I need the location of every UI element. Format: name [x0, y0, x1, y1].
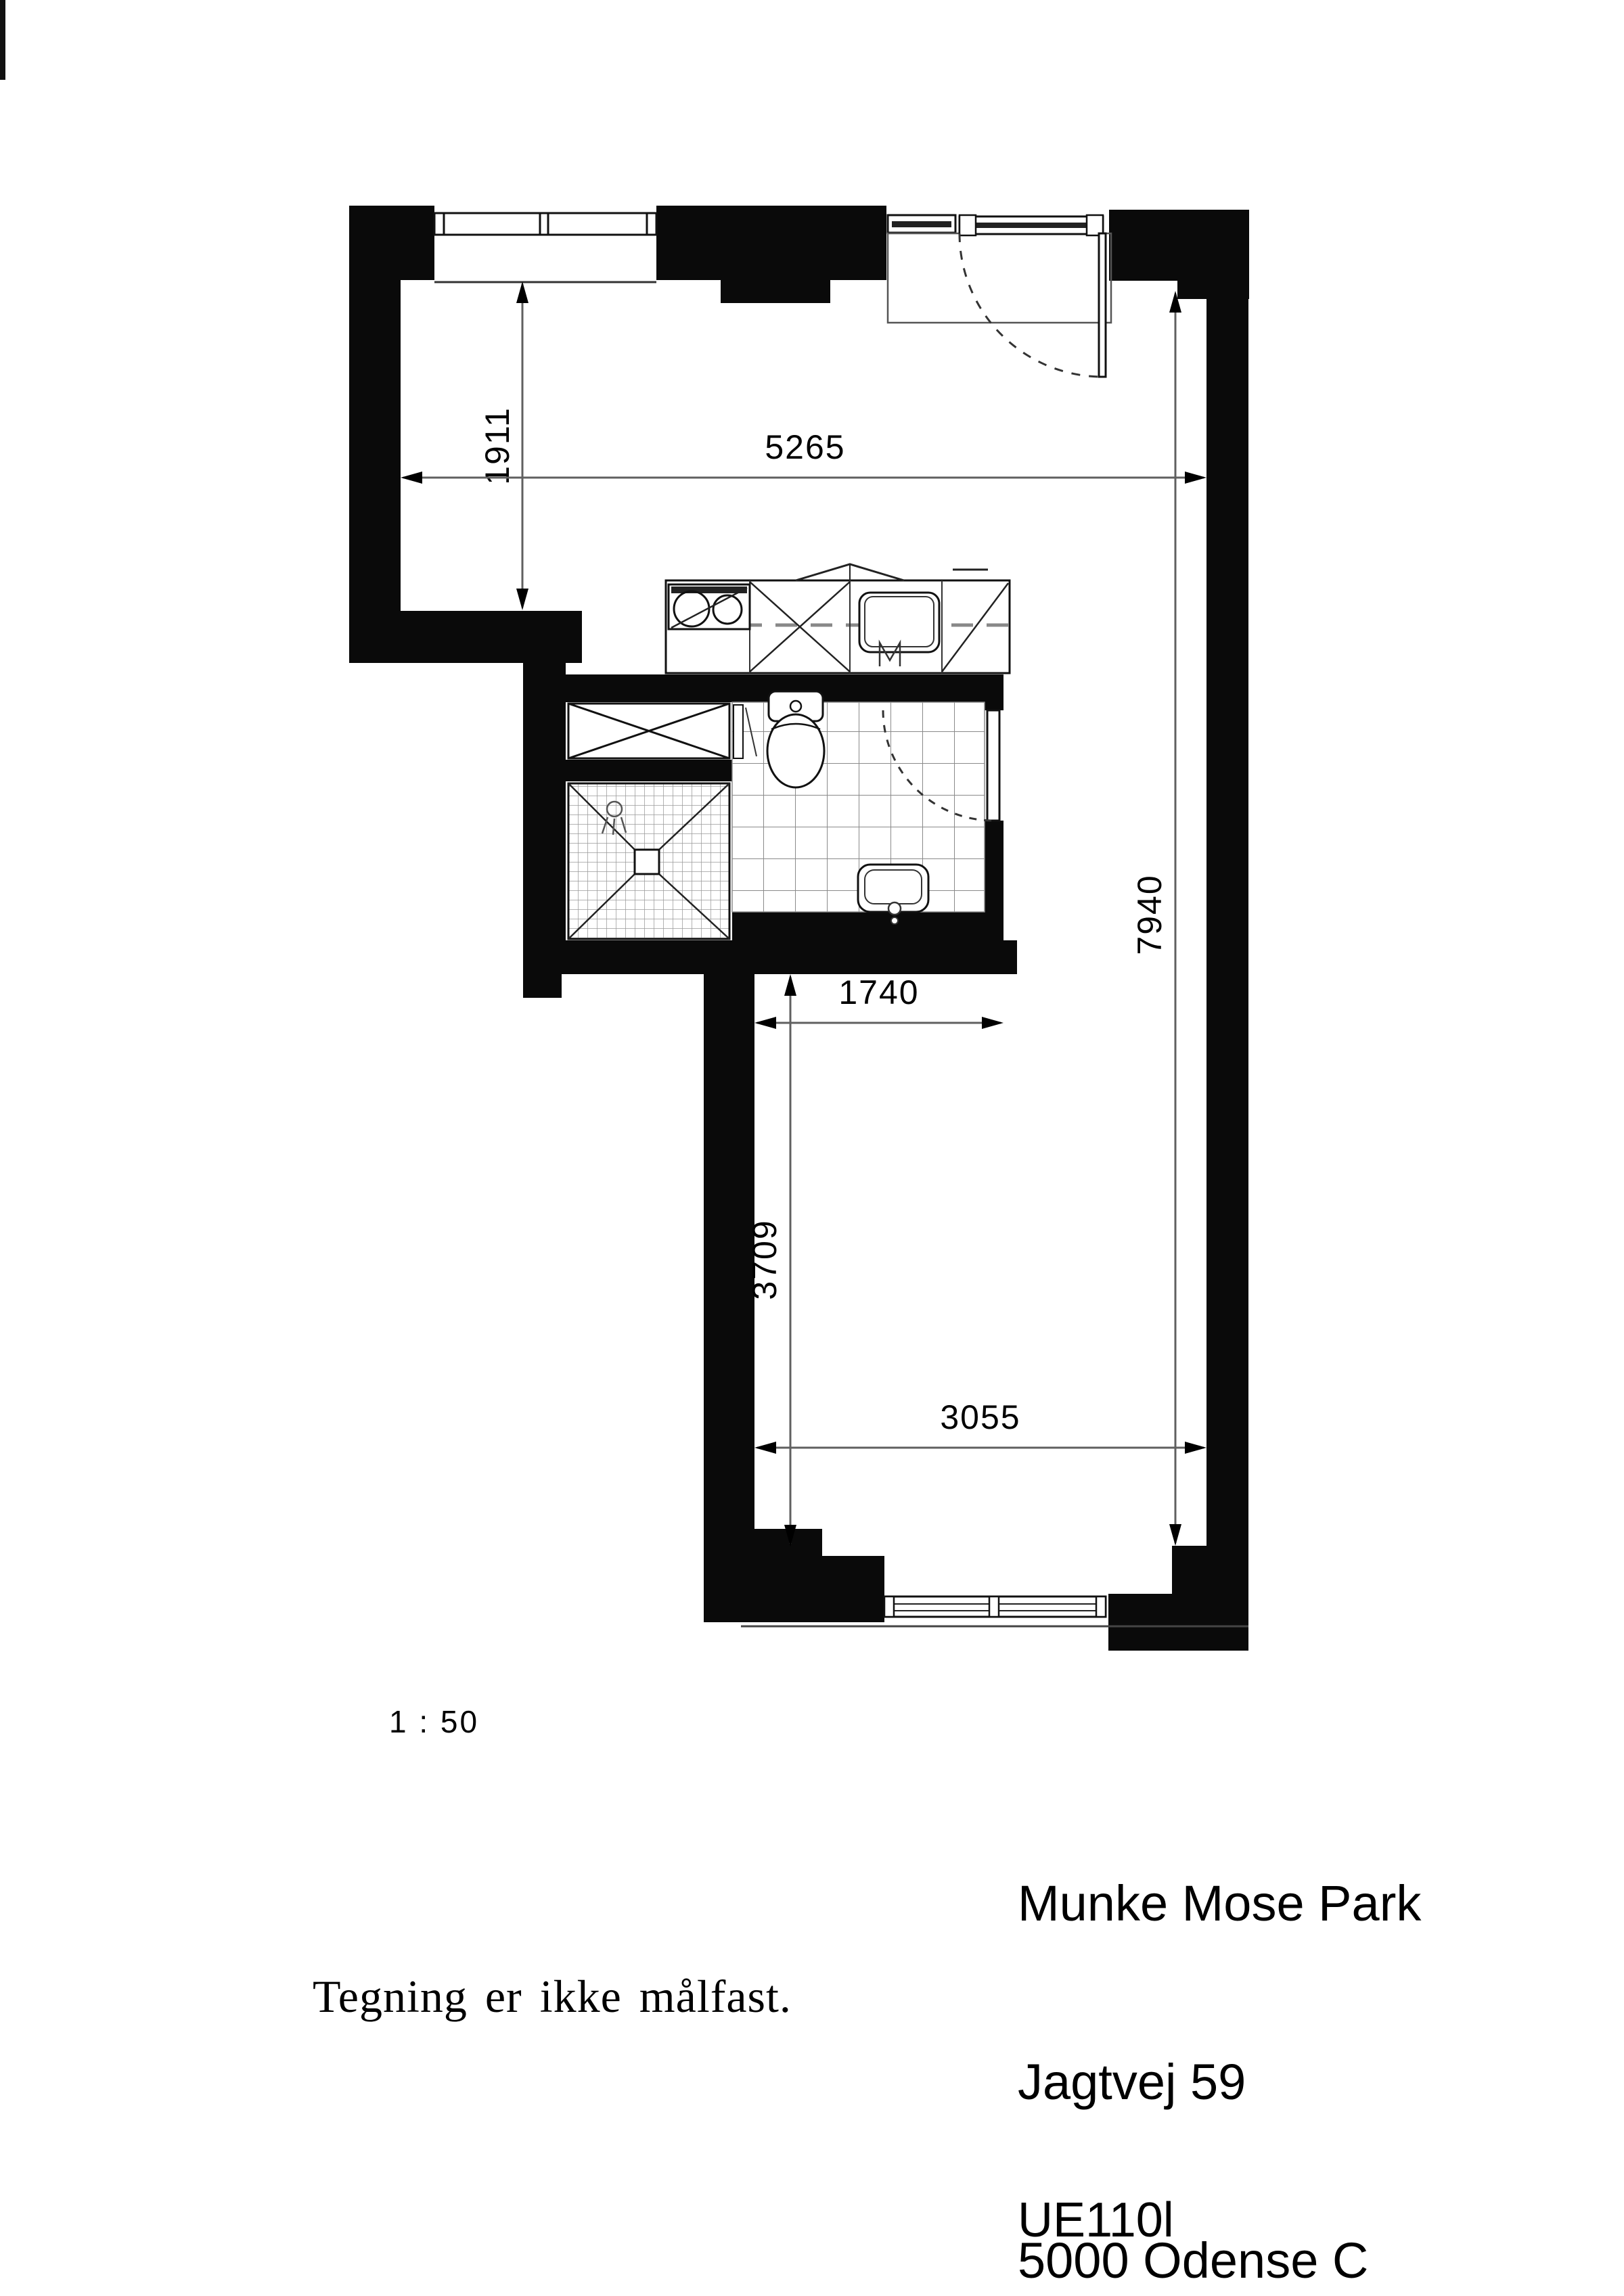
dim-label-7940: 7940 — [1131, 874, 1169, 955]
closet-door-leaf — [734, 705, 743, 758]
disclaimer-note: Tegning er ikke målfast. — [313, 1970, 792, 2023]
entry-door-swing-arc — [960, 233, 1103, 377]
scale-label: 1 : 50 — [389, 1703, 479, 1740]
dim-label-1911: 1911 — [478, 407, 516, 485]
range-hood-icon — [796, 564, 988, 580]
window-top-left — [434, 213, 656, 282]
shower-drain-icon — [635, 850, 659, 874]
dim-label-5265: 5265 — [765, 428, 845, 466]
address-line-1: Munke Mose Park — [1018, 1874, 1421, 1933]
kitchen-counter — [666, 564, 1010, 673]
toilet-icon — [767, 691, 824, 787]
dim-label-3055: 3055 — [940, 1398, 1020, 1436]
dimension-3055: 3055 — [754, 1398, 1206, 1454]
dimension-1911: 1911 — [478, 281, 528, 610]
page-edge-artifact — [0, 0, 5, 80]
shower — [568, 783, 729, 939]
unit-info-block: UE110l Bruttoareal: 48,4 m² Nettoareal: … — [1018, 2057, 1435, 2296]
entry-door — [888, 215, 1111, 377]
bathroom-door-leaf — [987, 710, 999, 821]
entry-door-leaf — [1099, 233, 1106, 377]
closet — [568, 704, 757, 758]
unit-id: UE110l — [1018, 2188, 1435, 2253]
dim-label-1740: 1740 — [838, 973, 919, 1011]
drawing-sheet: 1911 5265 7940 1740 3709 3055 1 : 50 Mun… — [0, 0, 1624, 2296]
dim-label-3709: 3709 — [746, 1219, 784, 1300]
window-top-right — [888, 215, 955, 233]
dimension-7940: 7940 — [1131, 291, 1181, 1546]
cooktop-icon — [669, 584, 750, 629]
